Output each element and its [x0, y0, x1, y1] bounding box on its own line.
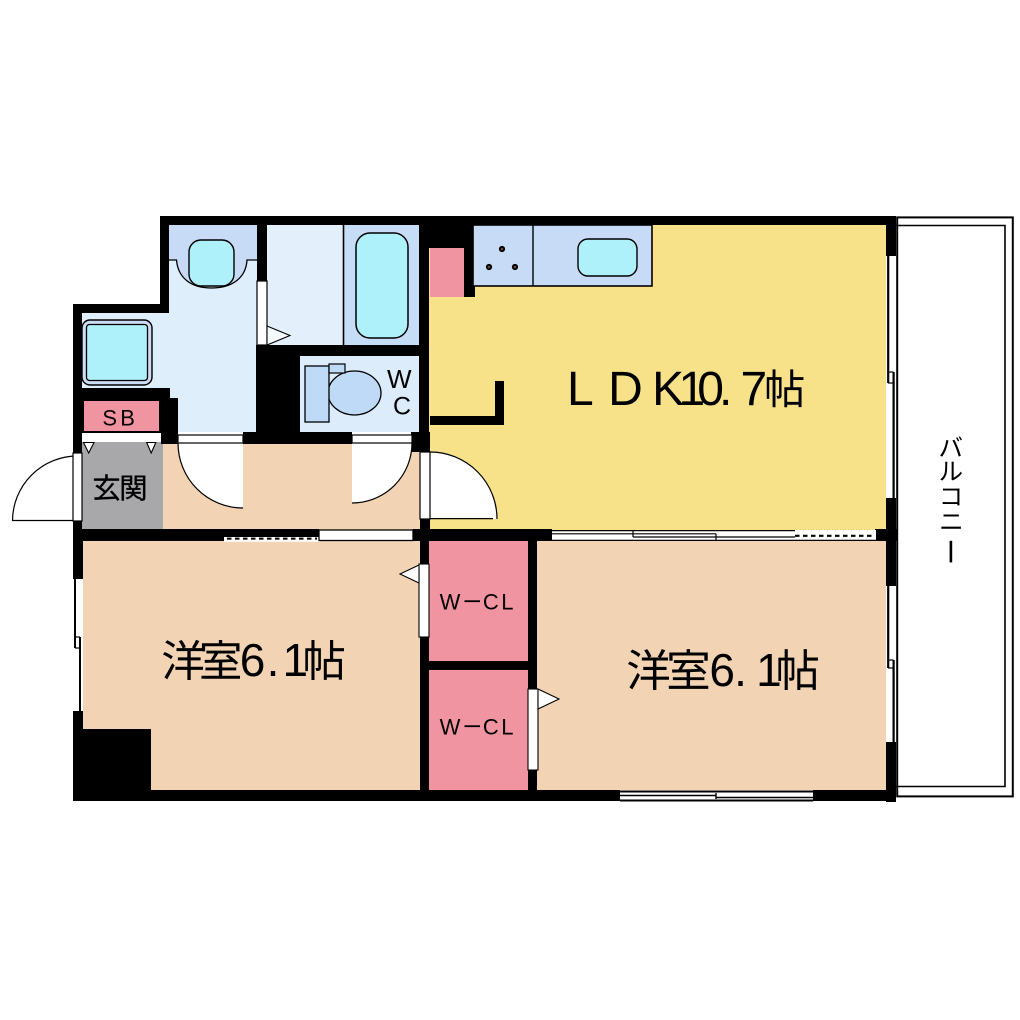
- svg-text:1: 1: [283, 634, 309, 686]
- svg-text:7: 7: [741, 363, 768, 416]
- svg-text:6: 6: [240, 634, 266, 686]
- svg-text:W: W: [440, 715, 461, 740]
- svg-text:C: C: [393, 393, 411, 421]
- svg-text:B: B: [120, 405, 135, 430]
- svg-text:6: 6: [709, 644, 735, 696]
- svg-text:.: .: [267, 634, 280, 686]
- svg-text:L: L: [501, 590, 513, 615]
- svg-text:C: C: [483, 590, 499, 615]
- svg-text:1: 1: [756, 644, 782, 696]
- svg-text:D: D: [608, 363, 643, 416]
- svg-text:.: .: [719, 363, 732, 416]
- svg-text:W: W: [440, 590, 461, 615]
- svg-text:.: .: [734, 644, 747, 696]
- svg-text:C: C: [483, 715, 499, 740]
- svg-text:L: L: [567, 363, 594, 416]
- svg-text:W: W: [387, 364, 412, 394]
- svg-text:S: S: [102, 405, 117, 430]
- svg-text:L: L: [501, 715, 513, 740]
